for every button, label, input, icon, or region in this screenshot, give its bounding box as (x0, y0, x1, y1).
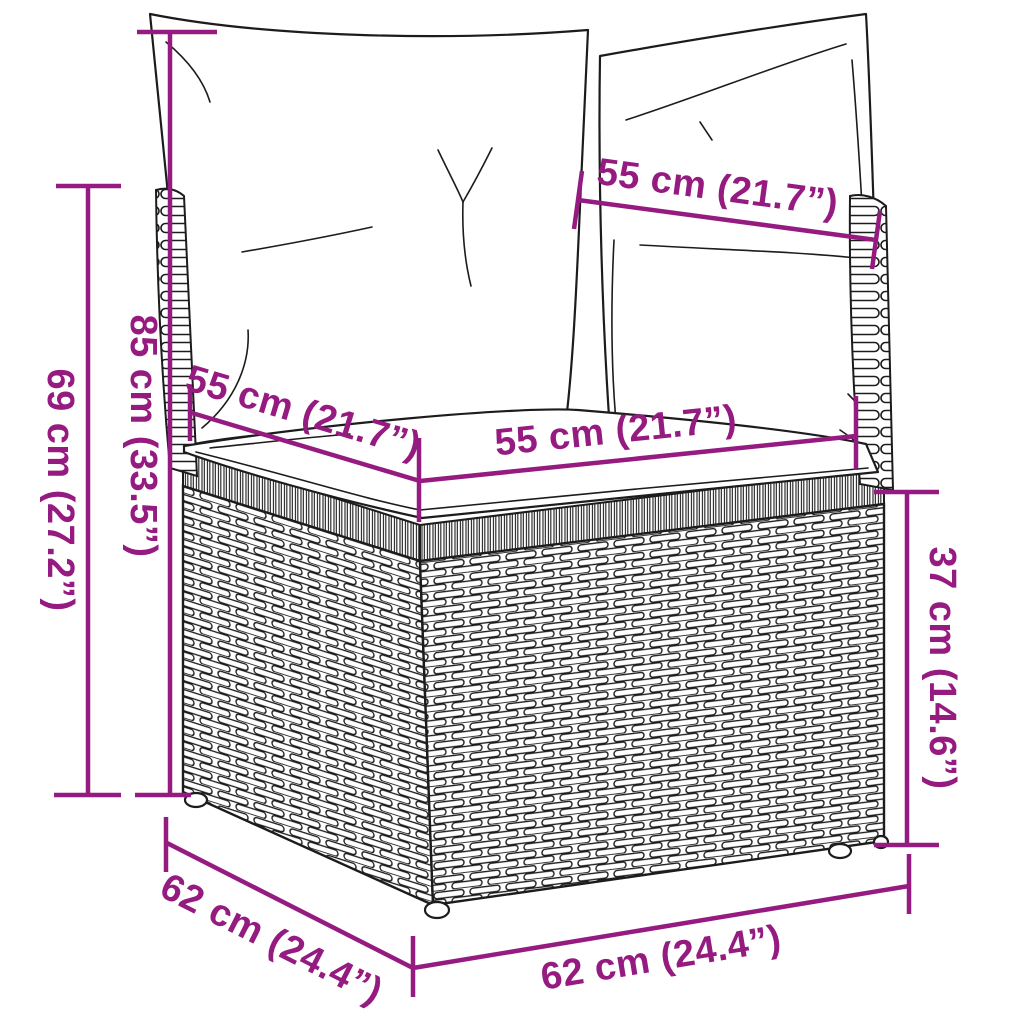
dim-label-base-height: 37 cm (14.6”) (921, 546, 963, 789)
base-right-face (420, 504, 884, 905)
dim-label-armrest-height: 69 cm (27.2”) (39, 368, 81, 611)
dim-label-total-height: 85 cm (33.5”) (122, 314, 164, 557)
back-cushion-right (600, 14, 883, 467)
sofa-line-art (150, 14, 893, 918)
product-dimension-diagram: 55 cm (21.7”) 55 cm (21.7”) 55 cm (21.7”… (0, 0, 1024, 1024)
sofa-foot (425, 902, 449, 918)
dim-label-base-width: 62 cm (24.4”) (538, 918, 785, 999)
dimension-diagram-canvas: 55 cm (21.7”) 55 cm (21.7”) 55 cm (21.7”… (0, 0, 1024, 1024)
sofa-foot (829, 844, 851, 858)
